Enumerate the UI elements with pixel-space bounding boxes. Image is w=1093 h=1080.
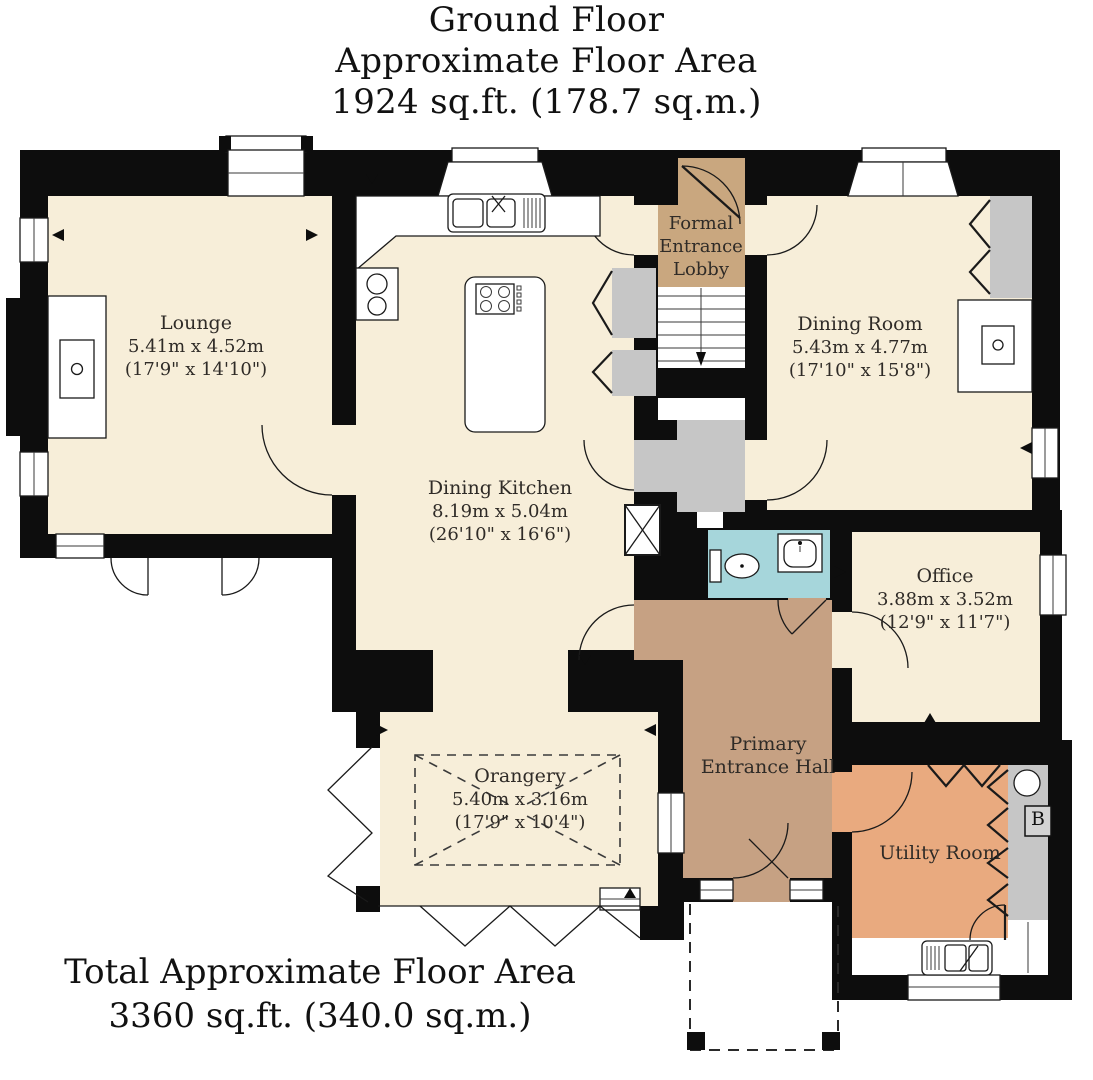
label-primary-entrance-hall: Primary Entrance Hall xyxy=(698,733,838,779)
water-cylinder xyxy=(1014,770,1040,796)
utility-sink xyxy=(922,941,992,975)
kitchen-island xyxy=(465,277,545,432)
kitchen-sink xyxy=(448,194,545,232)
kitchen-chimney-bay xyxy=(438,148,552,196)
label-dining-kitchen: Dining Kitchen 8.19m x 5.04m (26'10" x 1… xyxy=(380,477,620,546)
label-lounge: Lounge 5.41m x 4.52m (17'9" x 14'10") xyxy=(76,312,316,381)
dining-bay-window xyxy=(848,148,958,196)
label-formal-entrance-lobby: Formal Entrance Lobby xyxy=(646,212,756,281)
total-area-line2: 3360 sq.ft. (340.0 sq.m.) xyxy=(50,994,590,1038)
flue-box xyxy=(625,505,660,555)
floorplan-canvas: Ground Floor Approximate Floor Area 1924… xyxy=(0,0,1093,1080)
label-dining-room: Dining Room 5.43m x 4.77m (17'10" x 15'8… xyxy=(740,313,980,382)
toilet-cistern xyxy=(710,550,721,582)
total-area-text: Total Approximate Floor Area 3360 sq.ft.… xyxy=(50,950,590,1038)
total-area-line1: Total Approximate Floor Area xyxy=(50,950,590,994)
label-boiler: B xyxy=(1027,808,1049,830)
porch xyxy=(687,904,840,1050)
label-orangery: Orangery 5.40m x 3.16m (17'9" x 10'4") xyxy=(400,765,640,834)
label-office: Office 3.88m x 3.52m (12'9" x 11'7") xyxy=(825,565,1065,634)
inner-vestibule xyxy=(677,420,745,512)
stair-landing xyxy=(658,398,745,420)
wc-basin xyxy=(778,534,822,572)
label-utility-room: Utility Room xyxy=(870,842,1010,865)
range-cooker xyxy=(356,268,398,320)
